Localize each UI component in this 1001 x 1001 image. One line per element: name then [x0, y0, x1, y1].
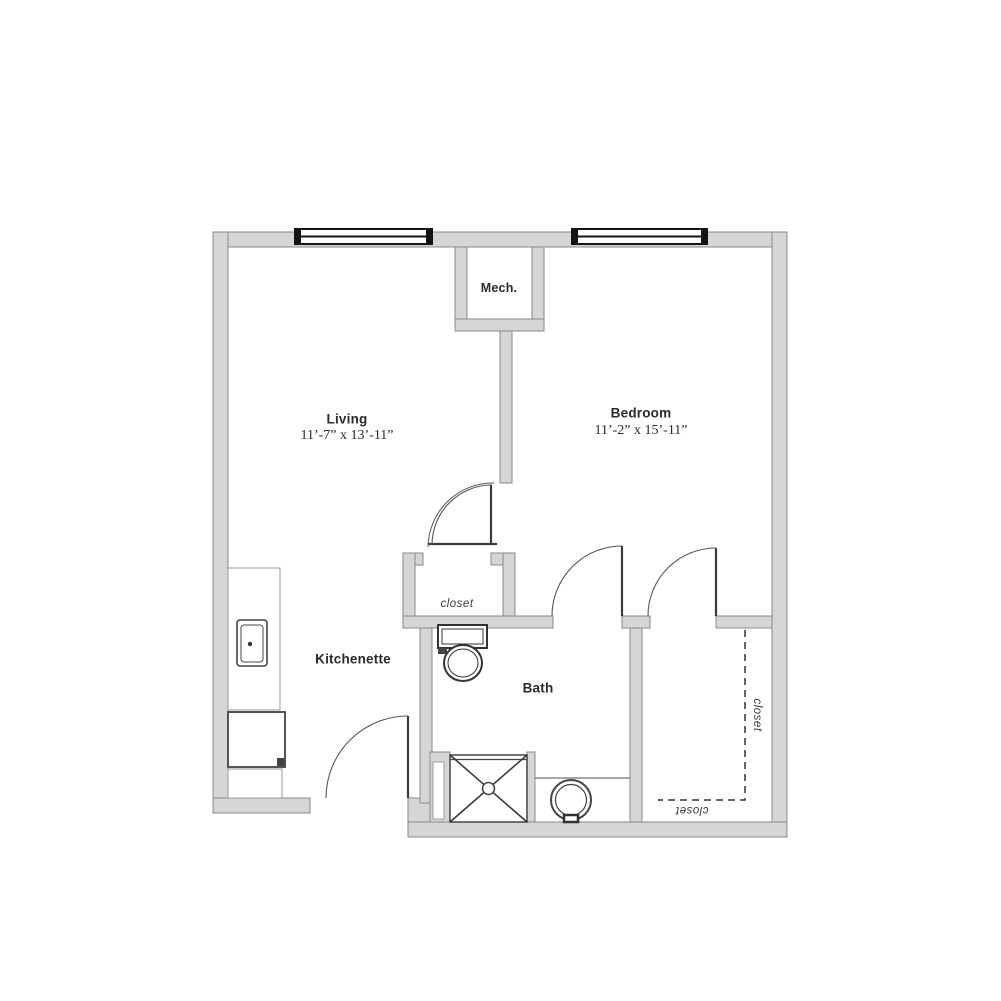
wall-bath-bedroom-divider [630, 628, 642, 822]
wall-left [213, 232, 228, 813]
floor-plan: Living 11’-7” x 13’-11” Bedroom 11’-2” x… [0, 0, 1001, 1001]
room-dims-bedroom: 11’-2” x 15’-11” [594, 423, 687, 439]
room-label-kitchenette: Kitchenette [315, 652, 391, 667]
bathroom-sink-faucet [564, 815, 578, 822]
window-living-cap-right [426, 229, 432, 244]
wall-mech-bottom [455, 319, 544, 331]
kitchen-appliance-hinge [277, 758, 285, 766]
label-bedroom-closet-side: closet [751, 698, 763, 731]
room-label-mech: Mech. [481, 281, 517, 295]
room-dims-living: 11’-7” x 13’-11” [300, 428, 393, 444]
hall-door-swing-arc-outer [428, 483, 494, 547]
bath-door-swing-arc [552, 546, 622, 616]
hall-door-swing-arc [432, 485, 492, 545]
wall-door-pier [622, 616, 650, 628]
room-label-bath: Bath [523, 681, 554, 696]
kitchen-sink-drain [248, 642, 252, 646]
shower-niche [433, 762, 444, 819]
doors [326, 483, 716, 798]
kitchen-fixtures [228, 568, 285, 798]
kitchen-cabinet [228, 769, 282, 798]
bedroom-closet-door-swing-arc [648, 548, 716, 616]
wall-bottom-kitchen [213, 798, 310, 813]
room-label-living: Living [327, 412, 368, 427]
shower-drain [483, 783, 495, 795]
label-hall-closet: closet [440, 598, 473, 610]
wall-mech-left [455, 247, 467, 331]
kitchen-appliance [228, 712, 285, 767]
wall-shower-right [527, 752, 535, 822]
toilet-handle [438, 648, 447, 654]
window-bedroom-cap-left [572, 229, 578, 244]
wall-bedroom-seg [716, 616, 772, 628]
floor-plan-drawing [0, 0, 1001, 1001]
wall-bottom-main [408, 822, 787, 837]
closet-boundary-dashed [658, 630, 745, 800]
window-bedroom-cap-right [701, 229, 707, 244]
walls [213, 232, 787, 837]
entry-door-swing-arc [326, 716, 408, 798]
wall-mech-right [532, 247, 544, 331]
wall-right [772, 232, 787, 837]
wall-hall-stem [500, 331, 512, 483]
window-living-cap-left [295, 229, 301, 244]
label-bedroom-closet-bottom: closet [675, 804, 708, 816]
toilet-bowl [444, 645, 482, 681]
room-label-bedroom: Bedroom [611, 406, 672, 421]
